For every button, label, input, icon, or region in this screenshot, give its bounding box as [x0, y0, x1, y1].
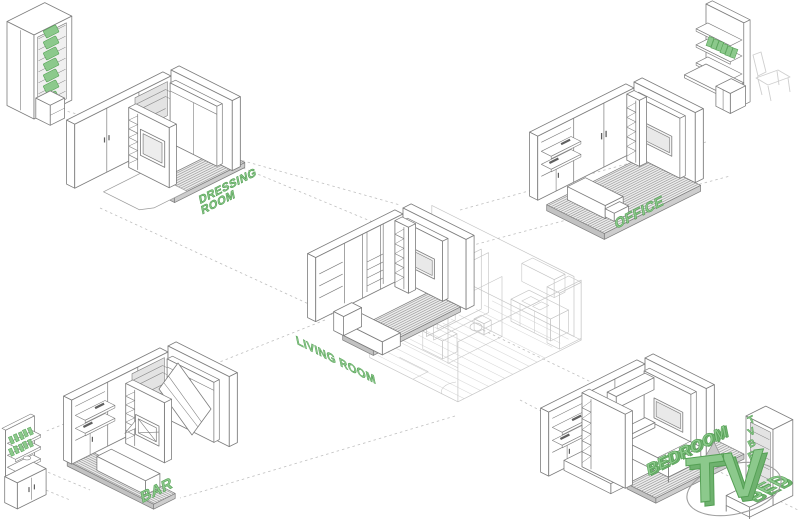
svg-text:TV: TV: [685, 435, 766, 519]
